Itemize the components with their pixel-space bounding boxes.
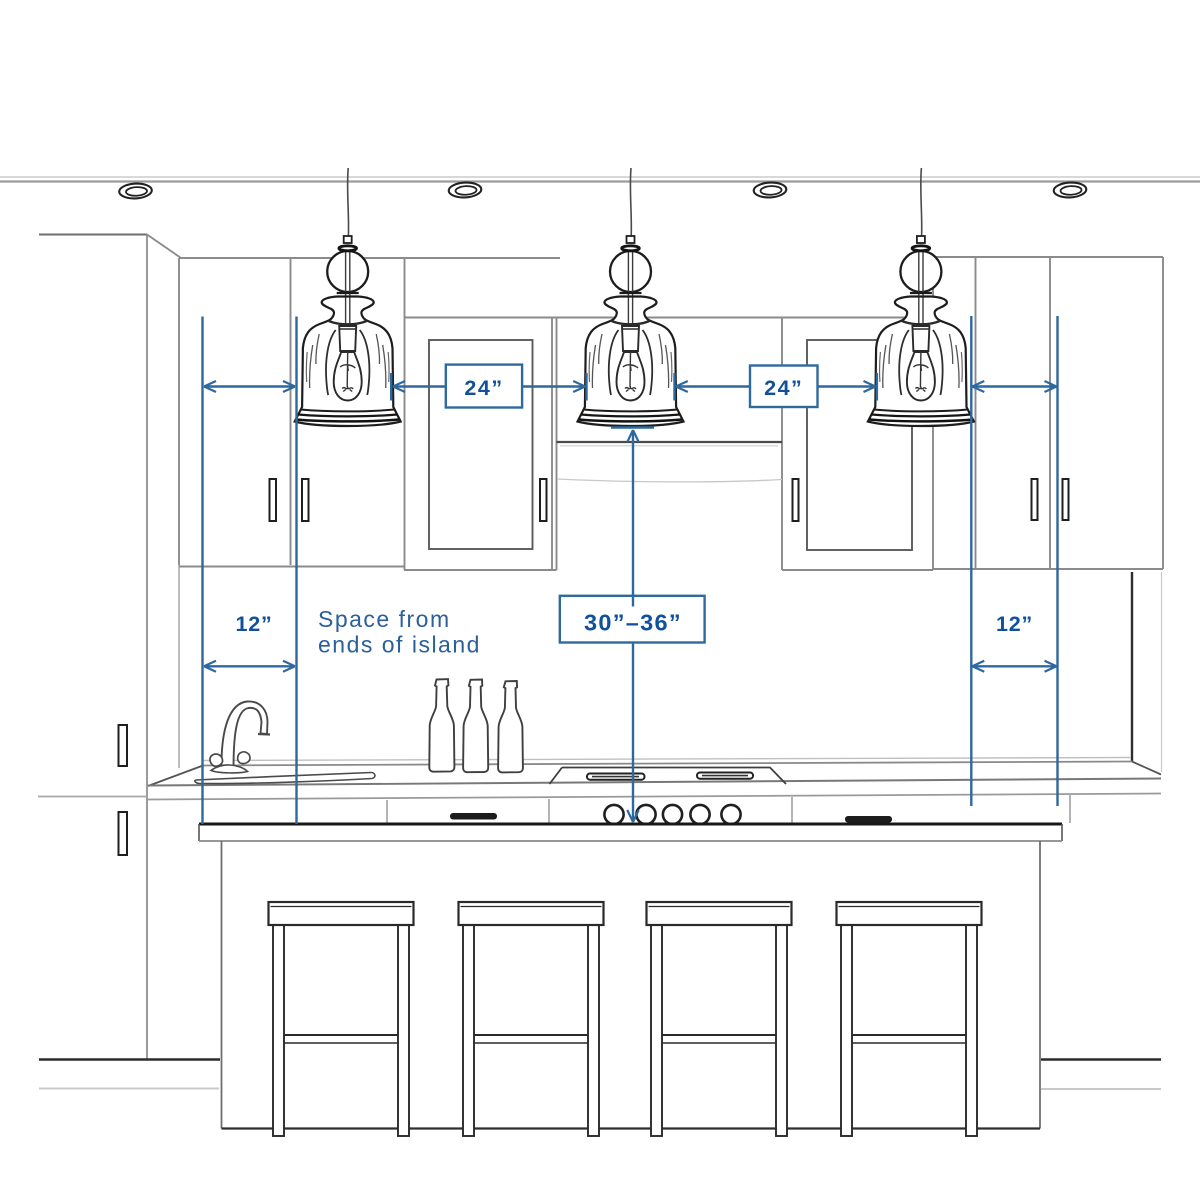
svg-text:24”: 24”: [764, 376, 803, 400]
svg-text:12”: 12”: [235, 612, 272, 636]
svg-text:ends of island: ends of island: [318, 632, 481, 658]
svg-text:24”: 24”: [464, 376, 503, 400]
svg-text:Space from: Space from: [318, 606, 451, 632]
svg-text:30”–36”: 30”–36”: [584, 610, 682, 636]
svg-text:12”: 12”: [996, 612, 1033, 636]
